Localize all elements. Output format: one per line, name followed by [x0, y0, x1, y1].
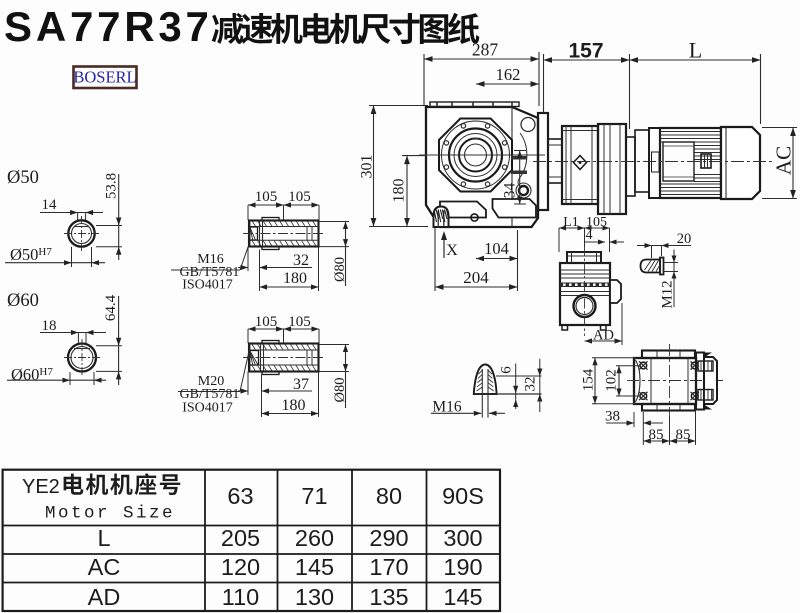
svg-text:180: 180: [391, 179, 408, 203]
svg-text:AD: AD: [593, 328, 614, 344]
svg-text:4: 4: [586, 228, 593, 243]
svg-text:20: 20: [677, 231, 692, 247]
svg-text:53.8: 53.8: [104, 173, 120, 199]
svg-text:130: 130: [295, 584, 334, 610]
svg-text:157: 157: [568, 40, 603, 63]
svg-text:105: 105: [288, 189, 311, 205]
svg-text:154: 154: [581, 368, 597, 391]
svg-text:145: 145: [443, 584, 482, 610]
svg-text:102: 102: [604, 369, 620, 392]
svg-text:64.4: 64.4: [103, 294, 119, 321]
svg-text:L: L: [97, 525, 110, 551]
svg-text:300: 300: [443, 525, 482, 551]
svg-text:38: 38: [605, 409, 620, 425]
svg-text:AC: AC: [88, 554, 121, 580]
svg-text:135: 135: [369, 584, 408, 610]
svg-text:Ø50: Ø50: [7, 168, 39, 188]
svg-text:34: 34: [502, 183, 519, 199]
svg-text:301: 301: [359, 155, 376, 179]
svg-text:105: 105: [255, 314, 278, 330]
svg-text:6: 6: [499, 366, 515, 374]
svg-text:180: 180: [283, 270, 307, 287]
svg-text:ISO4017: ISO4017: [182, 278, 233, 293]
svg-text:Ø80: Ø80: [332, 378, 348, 403]
svg-text:M12: M12: [660, 280, 676, 308]
svg-text:180: 180: [282, 397, 306, 414]
svg-text:205: 205: [221, 525, 260, 551]
svg-text:32: 32: [293, 252, 309, 269]
svg-text:162: 162: [496, 65, 521, 84]
svg-text:14: 14: [42, 197, 58, 213]
svg-text:110: 110: [222, 584, 259, 610]
svg-text:170: 170: [369, 554, 408, 580]
svg-text:63: 63: [227, 483, 253, 509]
svg-text:18: 18: [42, 318, 57, 334]
svg-text:BOSERL: BOSERL: [73, 68, 136, 87]
svg-text:YE2: YE2: [22, 476, 60, 498]
svg-text:Ø60: Ø60: [7, 291, 39, 311]
svg-text:M16: M16: [432, 399, 462, 416]
svg-text:260: 260: [295, 525, 334, 551]
svg-text:105: 105: [255, 189, 278, 205]
svg-text:204: 204: [463, 268, 489, 287]
svg-text:ISO4017: ISO4017: [182, 401, 233, 416]
svg-text:Motor Size: Motor Size: [45, 504, 175, 524]
svg-text:120: 120: [221, 554, 260, 580]
svg-text:90S: 90S: [442, 483, 484, 509]
svg-text:AD: AD: [88, 584, 121, 610]
svg-text:AC: AC: [772, 146, 796, 175]
svg-text:Ø80: Ø80: [332, 257, 348, 282]
svg-text:290: 290: [369, 525, 408, 551]
svg-text:71: 71: [301, 483, 327, 509]
svg-text:145: 145: [295, 554, 334, 580]
svg-text:37: 37: [293, 376, 309, 393]
svg-text:105: 105: [288, 314, 311, 330]
svg-text:287: 287: [472, 40, 499, 60]
svg-text:190: 190: [443, 554, 482, 580]
svg-text:SA77R37: SA77R37: [4, 3, 213, 50]
svg-text:80: 80: [376, 483, 402, 509]
svg-text:104: 104: [484, 239, 509, 258]
svg-text:32: 32: [523, 377, 539, 392]
svg-text:L: L: [689, 38, 702, 63]
svg-text:X: X: [446, 242, 458, 259]
